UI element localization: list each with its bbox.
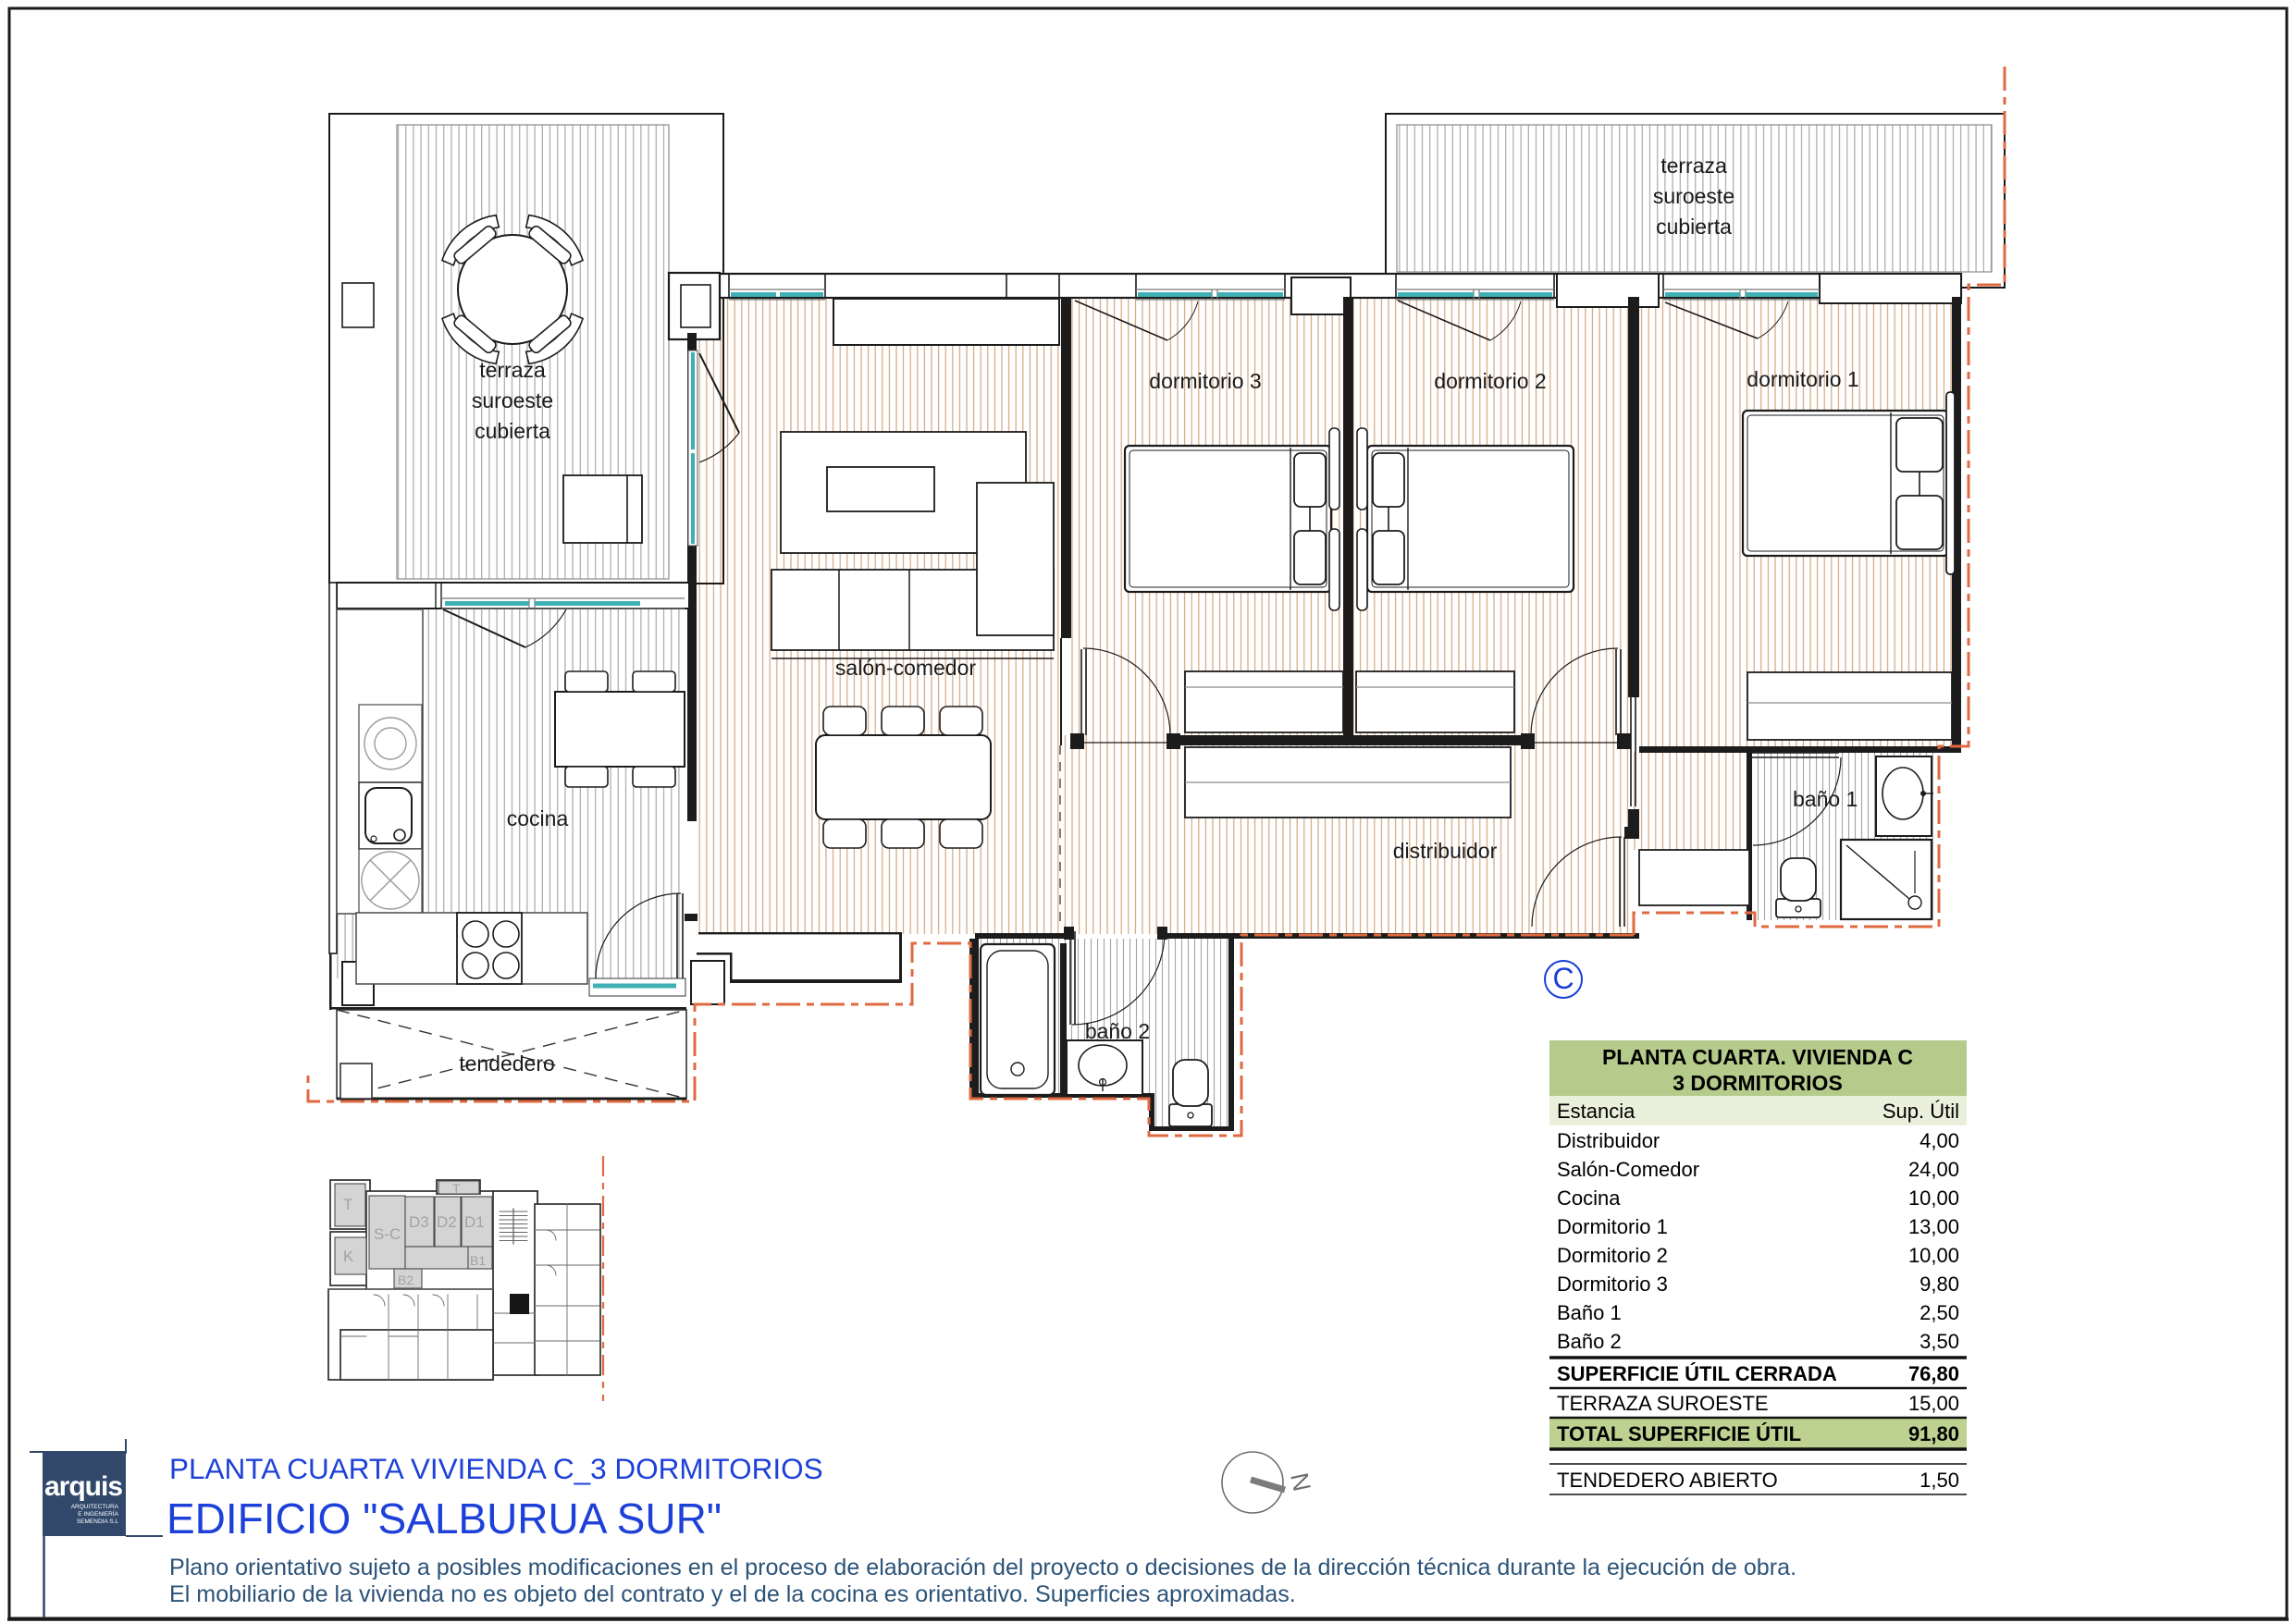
- svg-text:E INGENIERÍA: E INGENIERÍA: [78, 1509, 118, 1518]
- svg-text:D2: D2: [437, 1213, 457, 1231]
- svg-text:Estancia: Estancia: [1557, 1100, 1636, 1123]
- svg-text:terraza: terraza: [479, 358, 546, 382]
- svg-text:10,00: 10,00: [1908, 1244, 1959, 1267]
- svg-text:suroeste: suroeste: [1653, 184, 1734, 208]
- svg-text:4,00: 4,00: [1920, 1129, 1959, 1152]
- svg-text:dormitorio 1: dormitorio 1: [1747, 367, 1858, 391]
- svg-text:Baño 2: Baño 2: [1557, 1330, 1622, 1353]
- svg-text:cubierta: cubierta: [1656, 215, 1732, 239]
- svg-text:9,80: 9,80: [1920, 1273, 1959, 1296]
- svg-text:Dormitorio 2: Dormitorio 2: [1557, 1244, 1668, 1267]
- svg-text:TERRAZA SUROESTE: TERRAZA SUROESTE: [1557, 1392, 1769, 1415]
- svg-text:EDIFICIO "SALBURUA SUR": EDIFICIO "SALBURUA SUR": [167, 1494, 722, 1543]
- svg-text:C: C: [1552, 962, 1574, 995]
- svg-text:arquis: arquis: [44, 1471, 122, 1502]
- svg-text:El mobiliario de la vivienda n: El mobiliario de la vivienda no es objet…: [169, 1581, 1296, 1607]
- svg-text:dormitorio 2: dormitorio 2: [1434, 369, 1546, 393]
- svg-text:B1: B1: [470, 1253, 486, 1268]
- svg-text:13,00: 13,00: [1908, 1215, 1959, 1238]
- svg-text:TOTAL SUPERFICIE ÚTIL: TOTAL SUPERFICIE ÚTIL: [1557, 1422, 1801, 1445]
- svg-text:distribuidor: distribuidor: [1393, 839, 1498, 863]
- svg-text:baño 1: baño 1: [1793, 787, 1858, 811]
- svg-text:T: T: [343, 1196, 352, 1213]
- svg-text:TENDEDERO ABIERTO: TENDEDERO ABIERTO: [1557, 1469, 1778, 1492]
- svg-text:T: T: [452, 1181, 461, 1196]
- svg-text:ARQUITECTURA: ARQUITECTURA: [71, 1504, 119, 1510]
- svg-text:salón-comedor: salón-comedor: [835, 656, 976, 680]
- svg-text:tendedero: tendedero: [459, 1051, 555, 1076]
- svg-text:Salón-Comedor: Salón-Comedor: [1557, 1158, 1699, 1181]
- svg-text:B2: B2: [398, 1273, 414, 1287]
- svg-text:Baño 1: Baño 1: [1557, 1301, 1622, 1324]
- svg-text:SEMENDIA S.L: SEMENDIA S.L: [77, 1518, 119, 1525]
- svg-text:24,00: 24,00: [1908, 1158, 1959, 1181]
- svg-text:baño 2: baño 2: [1085, 1019, 1150, 1043]
- svg-text:Distribuidor: Distribuidor: [1557, 1129, 1660, 1152]
- svg-text:S-C: S-C: [374, 1225, 401, 1243]
- svg-text:cocina: cocina: [507, 806, 569, 830]
- svg-text:91,80: 91,80: [1908, 1422, 1959, 1445]
- svg-text:3,50: 3,50: [1920, 1330, 1959, 1353]
- svg-text:D1: D1: [464, 1213, 485, 1231]
- svg-text:3 DORMITORIOS: 3 DORMITORIOS: [1673, 1071, 1843, 1095]
- svg-text:suroeste: suroeste: [472, 388, 553, 412]
- svg-text:PLANTA CUARTA VIVIENDA C_3 DOR: PLANTA CUARTA VIVIENDA C_3 DORMITORIOS: [169, 1452, 823, 1485]
- svg-text:15,00: 15,00: [1908, 1392, 1959, 1415]
- svg-text:Cocina: Cocina: [1557, 1187, 1621, 1210]
- svg-text:1,50: 1,50: [1920, 1469, 1959, 1492]
- svg-text:Dormitorio 1: Dormitorio 1: [1557, 1215, 1668, 1238]
- svg-text:Plano orientativo sujeto a pos: Plano orientativo sujeto a posibles modi…: [169, 1555, 1796, 1580]
- svg-text:dormitorio 3: dormitorio 3: [1149, 369, 1261, 393]
- svg-text:76,80: 76,80: [1908, 1362, 1959, 1385]
- svg-text:terraza: terraza: [1660, 154, 1727, 178]
- svg-text:K: K: [343, 1248, 354, 1265]
- svg-text:10,00: 10,00: [1908, 1187, 1959, 1210]
- svg-text:2,50: 2,50: [1920, 1301, 1959, 1324]
- svg-text:PLANTA CUARTA. VIVIENDA C: PLANTA CUARTA. VIVIENDA C: [1602, 1045, 1913, 1069]
- svg-text:Dormitorio 3: Dormitorio 3: [1557, 1273, 1668, 1296]
- svg-text:Sup. Útil: Sup. Útil: [1882, 1100, 1959, 1123]
- svg-text:cubierta: cubierta: [475, 419, 550, 443]
- svg-text:SUPERFICIE ÚTIL CERRADA: SUPERFICIE ÚTIL CERRADA: [1557, 1362, 1837, 1385]
- svg-text:D3: D3: [409, 1213, 429, 1231]
